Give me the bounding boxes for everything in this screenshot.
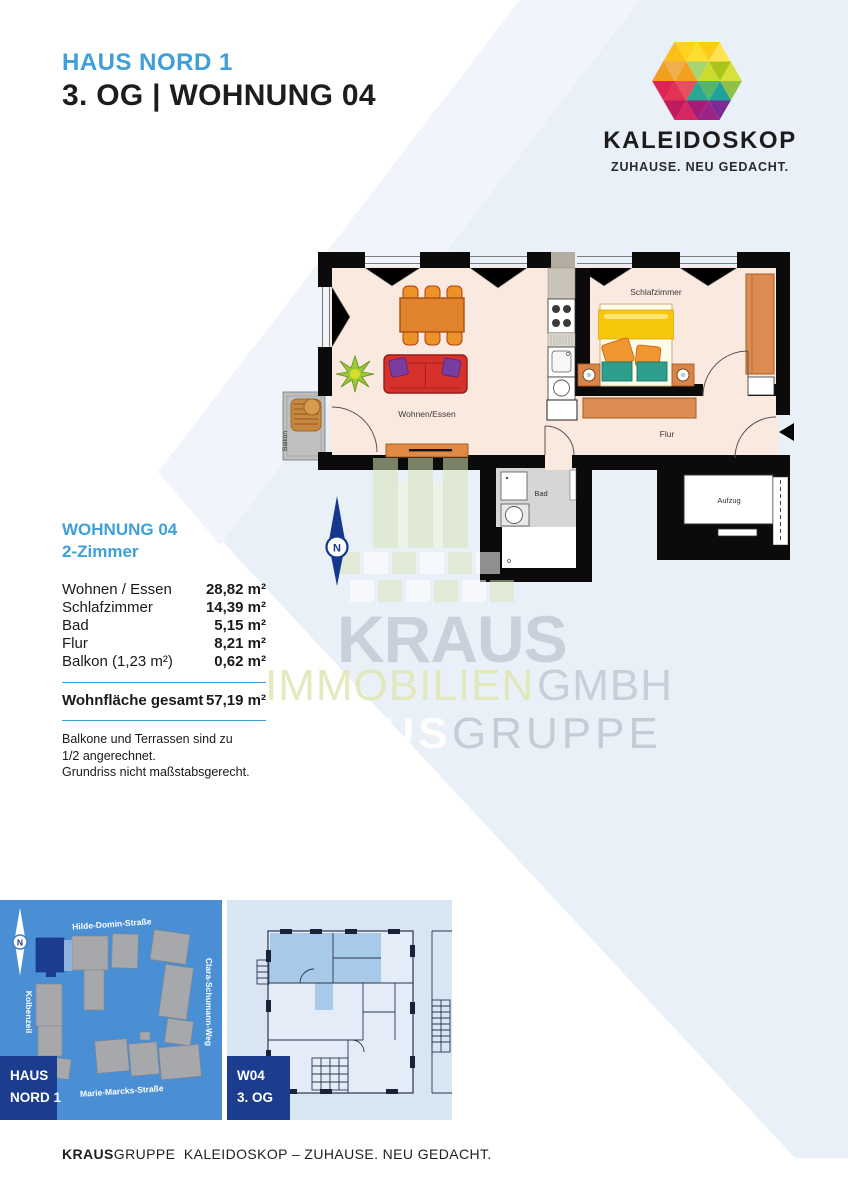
elevator: Aufzug [657,458,790,560]
footnote-line: 1/2 angerechnet. [62,748,266,765]
area-label: Wohnen / Essen [62,581,172,599]
lounger-icon [291,399,321,431]
elevator-label: Aufzug [717,496,740,505]
total-row: Wohnfläche gesamt57,19 m² [62,692,266,710]
area-table: WOHNUNG 04 2-Zimmer Wohnen / Essen28,82 … [62,519,266,781]
kaleidoskop-logo-icon [550,0,848,130]
compass-n-label: N [333,543,341,555]
area-label: Flur [62,635,88,653]
area-row: Flur8,21 m² [62,635,266,653]
area-value: 0,62 m² [214,653,266,671]
hexagon-facets [630,42,754,120]
wardrobe-icon [746,274,774,395]
stove-icon [548,299,575,333]
overview-label-box [227,1056,290,1120]
footer-brand-bold: KRAUS [62,1146,114,1162]
unit-title: WOHNUNG 04 [62,519,266,541]
sitemap-label-2: NORD 1 [10,1090,61,1105]
total-label: Wohnfläche gesamt [62,692,203,710]
footer-brand-rest: GRUPPE KALEIDOSKOP – ZUHAUSE. NEU GEDACH… [114,1146,492,1162]
balcony: Balkon [282,392,325,460]
north-compass-icon: N [315,490,360,595]
area-value: 28,82 m² [206,581,266,599]
street-right: Clara-Schumann-Weg [204,958,214,1046]
page-title: 3. OG | WOHNUNG 04 [62,79,376,113]
sofa-icon [384,355,467,393]
footnote-line: Balkone und Terrassen sind zu [62,731,266,748]
bath-label: Bad [534,489,547,498]
area-value: 8,21 m² [214,635,266,653]
area-label: Bad [62,617,89,635]
building-title: HAUS NORD 1 [62,49,233,77]
area-value: 14,39 m² [206,599,266,617]
entry-arrow-icon [779,423,794,441]
kitchen [547,268,577,420]
site-map: N Hilde-Domin-Straße Clara-Schumann-Weg … [0,900,222,1120]
footnotes: Balkone und Terrassen sind zu 1/2 angere… [62,731,266,781]
area-value: 5,15 m² [214,617,266,635]
living-label: Wohnen/Essen [398,409,456,419]
sitemap-label-1: HAUS [10,1068,48,1083]
shower-icon [501,472,527,500]
dining-set [400,286,464,345]
overview-label-2: 3. OG [237,1090,273,1105]
hall-label: Flur [660,429,675,439]
toilet-icon [506,507,523,524]
bedroom-label: Schlafzimmer [630,287,682,297]
bathroom: Bad [480,455,592,582]
bed [599,304,674,386]
floor-overview: W04 3. OG [227,900,452,1120]
dining-table-icon [400,298,464,332]
area-row: Bad5,15 m² [62,617,266,635]
area-row: Balkon (1,23 m²)0,62 m² [62,653,266,671]
sitemap-label-box [0,1056,57,1120]
street-left: Kolbenzeil [24,991,34,1034]
hall-sideboard-icon [583,398,696,418]
overview-label-1: W04 [237,1068,265,1083]
unit-subtitle: 2-Zimmer [62,541,266,563]
area-row: Wohnen / Essen28,82 m² [62,581,266,599]
map-compass-n: N [17,938,23,948]
footer-claim: KRAUSGRUPPE KALEIDOSKOP – ZUHAUSE. NEU G… [62,1146,492,1162]
logo-wordmark: KALEIDOSKOP [550,127,848,155]
highlighted-building [36,938,64,972]
area-label: Balkon (1,23 m²) [62,653,173,671]
area-label: Schlafzimmer [62,599,153,617]
footnote-line: Grundriss nicht maßstabsgerecht. [62,764,266,781]
logo-tagline: ZUHAUSE. NEU GEDACHT. [550,160,848,174]
balcony-label: Balkon [282,431,289,451]
total-value: 57,19 m² [206,692,266,710]
tv-sideboard-icon [386,444,468,457]
expose-page: HAUS NORD 1 3. OG | WOHNUNG 04 [0,0,848,1200]
area-row: Schlafzimmer14,39 m² [62,599,266,617]
